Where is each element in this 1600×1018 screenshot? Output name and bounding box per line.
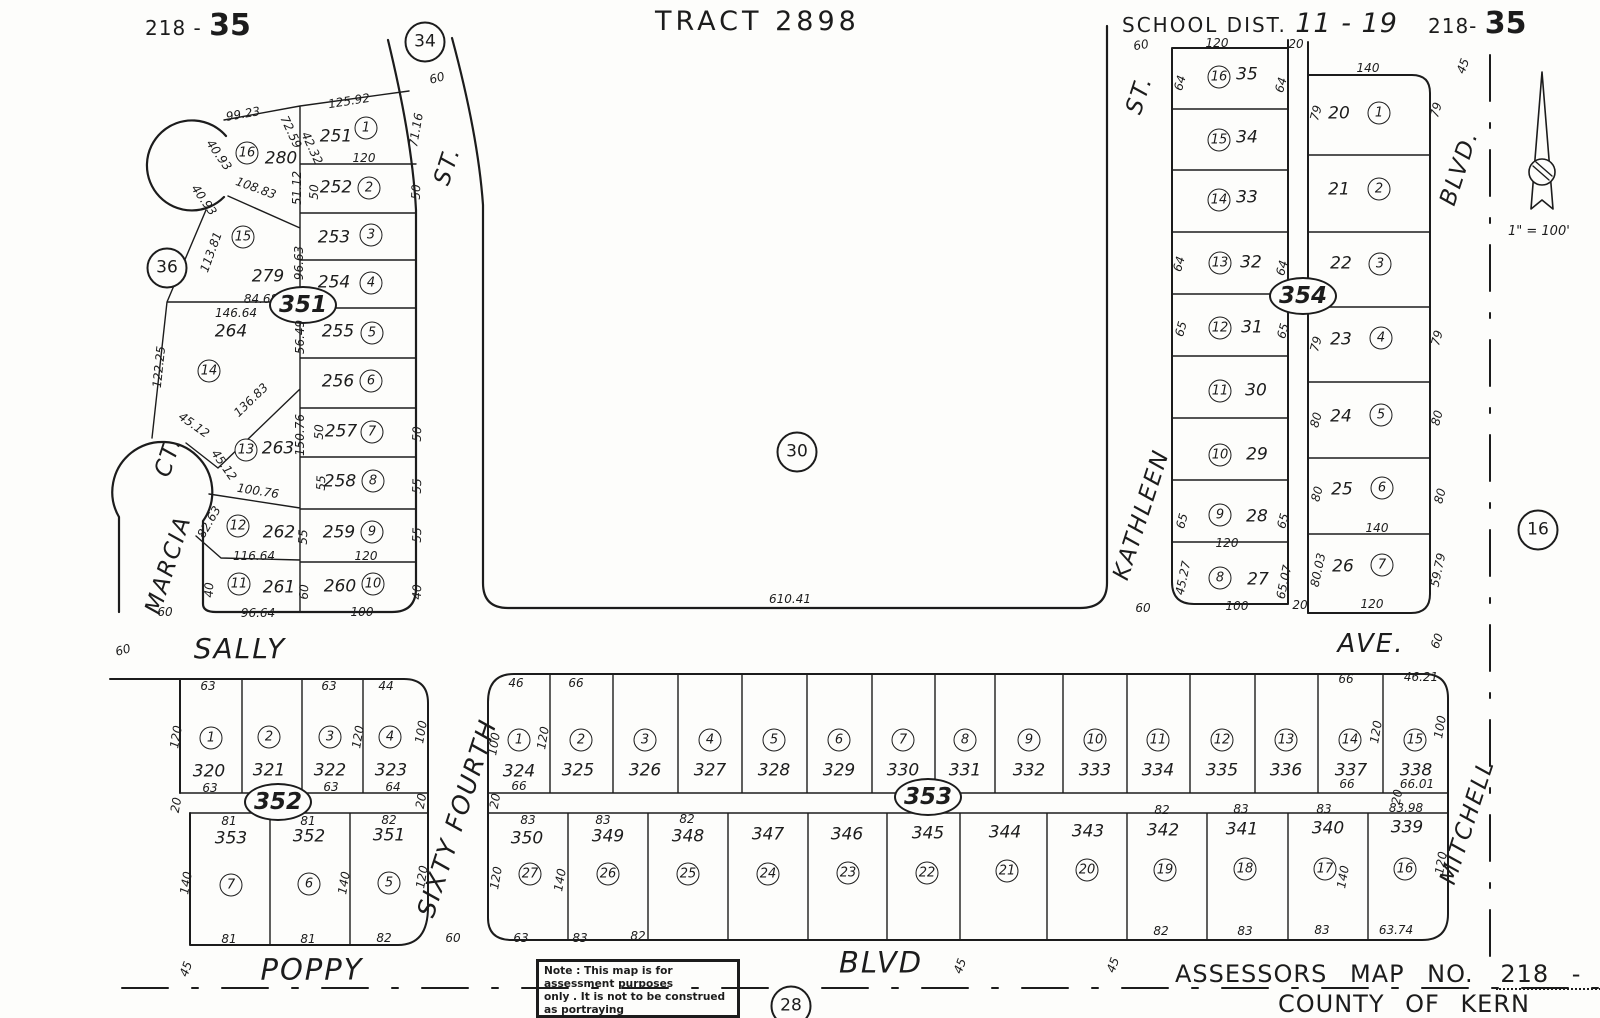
dimension-label: 55	[411, 478, 424, 494]
dimension-label: 120	[350, 725, 366, 750]
school-district-value: 11 - 19	[1295, 8, 1398, 39]
dimension-label: 60	[445, 932, 460, 944]
lot-number: 326	[629, 763, 661, 780]
dimension-label: 50	[313, 424, 326, 440]
lot-number: 23	[1330, 332, 1352, 349]
dimension-label: 83	[520, 814, 535, 826]
north-arrow-icon	[1529, 72, 1555, 209]
lot-index: 10	[1209, 444, 1232, 467]
dimension-label: 96.63	[293, 246, 305, 280]
lot-number: 346	[831, 827, 863, 844]
tract-title: TRACT 2898	[655, 6, 860, 37]
dimension-label: 81	[221, 815, 236, 827]
lot-number: 349	[592, 829, 624, 846]
dimension-label: 116.64	[233, 550, 275, 562]
dimension-label: 83	[1237, 925, 1252, 937]
lot-number: 33	[1236, 190, 1258, 207]
lot-index: 15	[1208, 129, 1231, 152]
lot-index: 2	[258, 726, 281, 749]
dimension-label: 60	[1135, 602, 1150, 614]
dimension-label: 140	[552, 868, 568, 893]
dimension-label: 82	[630, 930, 645, 942]
lot-number: 347	[752, 827, 784, 844]
dimension-label: 60	[428, 70, 446, 86]
dimension-label: 20	[1288, 38, 1303, 50]
lot-number: 328	[758, 763, 790, 780]
dimension-label: 65	[1173, 320, 1189, 338]
lot-number: 28	[1246, 509, 1268, 526]
lot-index: 16	[1208, 66, 1231, 89]
dimension-label: 120	[488, 866, 504, 891]
sheet-number-left: 218 - 35	[145, 8, 251, 43]
dimension-label: 66	[1339, 778, 1354, 790]
county-line: COUNTY OF KERN	[1278, 990, 1530, 1018]
dimension-label: 60	[298, 584, 311, 600]
dimension-label: 81	[300, 815, 315, 827]
ref-circle-36: 36	[147, 248, 188, 289]
lot-index: 7	[361, 421, 384, 444]
lot-number: 24	[1330, 409, 1352, 426]
lot-number: 324	[503, 764, 535, 781]
lot-number: 256	[322, 374, 354, 391]
dimension-label: 55	[297, 529, 310, 545]
ref-circle-16: 16	[1518, 510, 1559, 551]
lot-index: 5	[763, 729, 786, 752]
lot-number: 35	[1236, 67, 1258, 84]
lot-index: 7	[892, 729, 915, 752]
block-353-lot-lines	[488, 674, 1448, 940]
lot-index: 20	[1076, 859, 1099, 882]
lot-number: 280	[265, 151, 297, 168]
lot-index: 8	[954, 729, 977, 752]
dimension-label: 120	[353, 152, 376, 164]
lot-number: 251	[320, 129, 352, 146]
dimension-label: 50	[411, 426, 424, 442]
dimension-label: 63	[323, 781, 338, 793]
lot-index: 4	[699, 729, 722, 752]
lot-index: 10	[1084, 729, 1107, 752]
lot-index: 22	[916, 862, 939, 885]
dimension-label: 80	[1309, 485, 1325, 503]
dimension-label: 120	[1368, 720, 1384, 745]
dimension-label: 63	[202, 782, 217, 794]
lot-number: 259	[323, 525, 355, 542]
dimension-label: 64	[1171, 255, 1187, 273]
dimension-label: 63	[200, 680, 215, 692]
lot-index: 3	[634, 729, 657, 752]
lot-number: 323	[375, 763, 407, 780]
block-353-outline	[488, 674, 1448, 940]
dimension-label: 100	[1432, 715, 1448, 740]
lot-number: 258	[324, 474, 356, 491]
lot-index: 15	[232, 226, 255, 249]
dimension-label: 610.41	[769, 593, 811, 605]
dimension-label: 20	[1292, 599, 1307, 611]
note-line: only . It is not to be construed as port…	[544, 991, 732, 1017]
dimension-label: 83	[572, 932, 587, 944]
lot-number: 333	[1079, 763, 1111, 780]
lot-index: 5	[361, 322, 384, 345]
lot-number: 257	[325, 424, 357, 441]
dimension-label: 64	[1274, 259, 1290, 277]
lot-number: 30	[1245, 383, 1267, 400]
lot-index: 7	[220, 874, 243, 897]
lot-index: 3	[360, 224, 383, 247]
lot-index: 1	[508, 729, 531, 752]
lot-index: 12	[1211, 729, 1234, 752]
street-sally: SALLY	[194, 635, 287, 663]
lot-index: 19	[1154, 859, 1177, 882]
dimension-label: 120	[1433, 851, 1449, 876]
dimension-label: 82	[1153, 925, 1168, 937]
lot-index: 11	[1209, 380, 1232, 403]
dimension-label: 140	[1335, 865, 1351, 890]
lot-index: 4	[379, 726, 402, 749]
lot-number: 279	[252, 269, 284, 286]
lot-number: 262	[263, 525, 295, 542]
block-number-353: 353	[894, 778, 962, 816]
dimension-label: 60	[157, 606, 172, 618]
dimension-label: 120	[535, 726, 551, 751]
ref-circle-30: 30	[777, 432, 818, 473]
lot-index: 9	[361, 521, 384, 544]
sheet-number-right: 218- 35	[1428, 6, 1527, 41]
lot-index: 23	[837, 862, 860, 885]
street-poppy: POPPY	[260, 956, 363, 985]
lot-index: 5	[1370, 404, 1393, 427]
lot-number: 350	[511, 831, 543, 848]
lot-index: 25	[677, 863, 700, 886]
dimension-label: 100	[351, 606, 374, 618]
lot-number: 325	[562, 763, 594, 780]
dimension-label: 83	[1316, 803, 1331, 815]
lot-number: 320	[193, 764, 225, 781]
dimension-label: 60	[1132, 38, 1149, 52]
lot-index: 9	[1209, 504, 1232, 527]
lot-number: 345	[912, 826, 944, 843]
lot-number: 263	[262, 441, 294, 458]
lot-number: 20	[1328, 106, 1350, 123]
dimension-label: 20	[169, 796, 183, 813]
lot-number: 335	[1206, 763, 1238, 780]
lot-index: 26	[597, 863, 620, 886]
lot-number: 21	[1328, 182, 1350, 199]
lot-index: 24	[757, 863, 780, 886]
lot-index: 11	[228, 573, 251, 596]
lot-number: 29	[1246, 447, 1268, 464]
dimension-label: 82	[381, 814, 396, 826]
lot-index: 7	[1371, 554, 1394, 577]
dimension-label: 55	[411, 527, 424, 543]
lot-number: 27	[1247, 572, 1269, 589]
dimension-label: 20	[488, 792, 502, 809]
dimension-label: 63.74	[1379, 924, 1413, 936]
lot-index: 17	[1314, 858, 1337, 881]
lot-index: 21	[996, 860, 1019, 883]
dimension-label: 146.64	[215, 307, 257, 319]
lot-index: 4	[1370, 327, 1393, 350]
lot-index: 3	[319, 726, 342, 749]
dimension-label: 100	[1226, 600, 1249, 612]
north-culdesac-arc	[147, 120, 226, 210]
lot-index: 1	[200, 727, 223, 750]
dimension-label: 120	[1216, 537, 1239, 549]
lot-index: 6	[360, 370, 383, 393]
lot-number: 353	[215, 831, 247, 848]
lot-index: 9	[1018, 729, 1041, 752]
school-district: SCHOOL DIST. 11 - 19	[1122, 8, 1398, 39]
lot-index: 12	[227, 515, 250, 538]
lot-number: 31	[1241, 320, 1263, 337]
block-number-351: 351	[269, 286, 337, 324]
dimension-label: 66	[1338, 673, 1353, 685]
dimension-label: 79	[1428, 101, 1444, 119]
lot-index: 27	[519, 863, 542, 886]
dimension-label: 79	[1308, 335, 1324, 353]
dimension-label: 150.76	[294, 414, 306, 456]
lot-number: 260	[324, 579, 356, 596]
lot-index: 16	[1394, 858, 1417, 881]
lot-number: 351	[373, 828, 405, 845]
dimension-label: 66	[511, 780, 526, 792]
dimension-label: 100	[486, 732, 502, 757]
block-number-354: 354	[1269, 277, 1337, 315]
lot-number: 329	[823, 763, 855, 780]
street-blvd: BLVD	[839, 949, 923, 978]
lot-number: 321	[253, 763, 285, 780]
lot-index: 14	[1208, 189, 1231, 212]
dimension-label: 44	[378, 680, 393, 692]
lot-index: 5	[378, 872, 401, 895]
dimension-label: 64	[1172, 74, 1188, 92]
lot-number: 334	[1142, 763, 1174, 780]
lot-number: 261	[263, 580, 295, 597]
dimension-label: 82	[1154, 804, 1169, 816]
lot-number: 339	[1391, 820, 1423, 837]
lot-index: 14	[198, 360, 221, 383]
dimension-label: 79	[1429, 329, 1445, 347]
ref-circle-28: 28	[771, 986, 812, 1018]
lot-number: 327	[694, 763, 726, 780]
lot-index: 1	[355, 117, 378, 140]
lot-index: 6	[1371, 477, 1394, 500]
dimension-label: 79	[1308, 104, 1324, 122]
lot-number: 331	[949, 763, 981, 780]
dimension-label: 81	[221, 933, 236, 945]
assessor-map-page: 3460ST.99.23125.921628072.5942.3240.9325…	[0, 0, 1600, 1018]
lot-index: 2	[1368, 178, 1391, 201]
dimension-label: 40	[411, 584, 424, 600]
dimension-label: 140	[1366, 522, 1389, 534]
dimension-label: 20	[414, 792, 428, 809]
lot-number: 34	[1236, 130, 1258, 147]
dimension-label: 140	[336, 871, 352, 896]
dimension-label: 64	[1273, 76, 1289, 94]
lot-index: 16	[236, 142, 259, 165]
right-block-rows	[1308, 155, 1430, 534]
lot-number: 26	[1332, 559, 1354, 576]
school-district-label: SCHOOL DIST.	[1122, 13, 1287, 37]
lot-index: 4	[360, 272, 383, 295]
dimension-label: 65	[1275, 322, 1291, 340]
lot-index: 13	[1209, 252, 1232, 275]
assessors-label: ASSESSORS MAP NO.	[1175, 960, 1474, 988]
lot-index: 18	[1234, 858, 1257, 881]
central-block-outline	[452, 26, 1107, 608]
sheet-prefix: 218-	[1428, 14, 1477, 38]
assessment-note-box: Note : This map is for assessment purpos…	[536, 959, 740, 1018]
lot-number: 22	[1330, 256, 1352, 273]
lot-index: 3	[1369, 253, 1392, 276]
lot-number: 25	[1331, 482, 1353, 499]
dimension-label: 64	[385, 781, 400, 793]
sheet-big-number: 35	[1485, 6, 1527, 41]
dimension-label: 66.01	[1400, 778, 1434, 790]
lot-number: 344	[989, 825, 1021, 842]
lot-index: 13	[1275, 729, 1298, 752]
lot-index: 15	[1404, 729, 1427, 752]
lot-index: 2	[358, 177, 381, 200]
dimension-label: 63	[513, 932, 528, 944]
dimension-label: 83	[595, 814, 610, 826]
street-ave: AVE.	[1338, 631, 1405, 657]
dimension-label: 82	[679, 813, 694, 825]
lot-index: 8	[1209, 567, 1232, 590]
assessors-number: 218 - 35	[1496, 960, 1600, 990]
note-line: Note : This map is for assessment purpos…	[544, 965, 732, 991]
dimension-label: 120	[168, 725, 184, 750]
lot-index: 13	[235, 439, 258, 462]
dimension-label: 140	[178, 871, 194, 896]
dimension-label: 65	[1275, 512, 1291, 530]
dimension-label: 80	[1432, 487, 1448, 505]
lot-number: 348	[672, 829, 704, 846]
dimension-label: 65	[1174, 512, 1190, 530]
assessors-map-line: ASSESSORS MAP NO. 218 - 35	[1175, 960, 1600, 988]
dimension-label: 81	[300, 933, 315, 945]
lot-number: 342	[1147, 823, 1179, 840]
ref-circle-34: 34	[405, 22, 446, 63]
dimension-label: 83.98	[1389, 802, 1423, 814]
dimension-label: 50	[308, 184, 321, 200]
dimension-label: 96.64	[241, 607, 275, 619]
lot-number: 343	[1072, 824, 1104, 841]
lot-number: 255	[322, 324, 354, 341]
lot-number: 264	[215, 324, 247, 341]
lot-index: 11	[1147, 729, 1170, 752]
dimension-label: 50	[410, 184, 423, 200]
dimension-label: 120	[1361, 598, 1384, 610]
lot-index: 6	[298, 873, 321, 896]
dimension-label: 120	[355, 550, 378, 562]
dimension-label: 83	[1314, 924, 1329, 936]
lot-number: 32	[1240, 255, 1262, 272]
lot-number: 252	[320, 180, 352, 197]
lot-number: 340	[1312, 821, 1344, 838]
dimension-label: 63	[321, 680, 336, 692]
dimension-label: 46.21	[1404, 671, 1438, 683]
lot-number: 330	[887, 763, 919, 780]
lot-index: 8	[362, 470, 385, 493]
lot-index: 1	[1368, 102, 1391, 125]
lot-number: 336	[1270, 763, 1302, 780]
lot-index: 14	[1339, 729, 1362, 752]
dimension-label: 140	[1357, 62, 1380, 74]
dimension-label: 60	[114, 642, 132, 658]
dimension-label: 82	[376, 932, 391, 944]
lot-number: 332	[1013, 763, 1045, 780]
dimension-label: 40	[203, 582, 216, 598]
dimension-label: 80	[1429, 409, 1445, 427]
dimension-label: 51.12	[291, 171, 303, 205]
scale-label: 1" = 100'	[1508, 224, 1570, 239]
sheet-prefix: 218 -	[145, 16, 202, 40]
dimension-label: 46	[508, 677, 523, 689]
lot-index: 6	[828, 729, 851, 752]
sheet-big-number: 35	[209, 8, 251, 43]
lot-number: 253	[318, 230, 350, 247]
lot-index: 2	[570, 729, 593, 752]
dimension-label: 66	[568, 677, 583, 689]
lot-number: 341	[1226, 822, 1258, 839]
lot-number: 352	[293, 829, 325, 846]
dimension-label: 83	[1233, 803, 1248, 815]
lot-number: 322	[314, 763, 346, 780]
dimension-label: 56.49	[294, 320, 306, 354]
dimension-label: 80	[1308, 411, 1324, 429]
lot-index: 10	[362, 573, 385, 596]
dimension-label: 100	[413, 720, 429, 745]
lot-index: 12	[1209, 317, 1232, 340]
